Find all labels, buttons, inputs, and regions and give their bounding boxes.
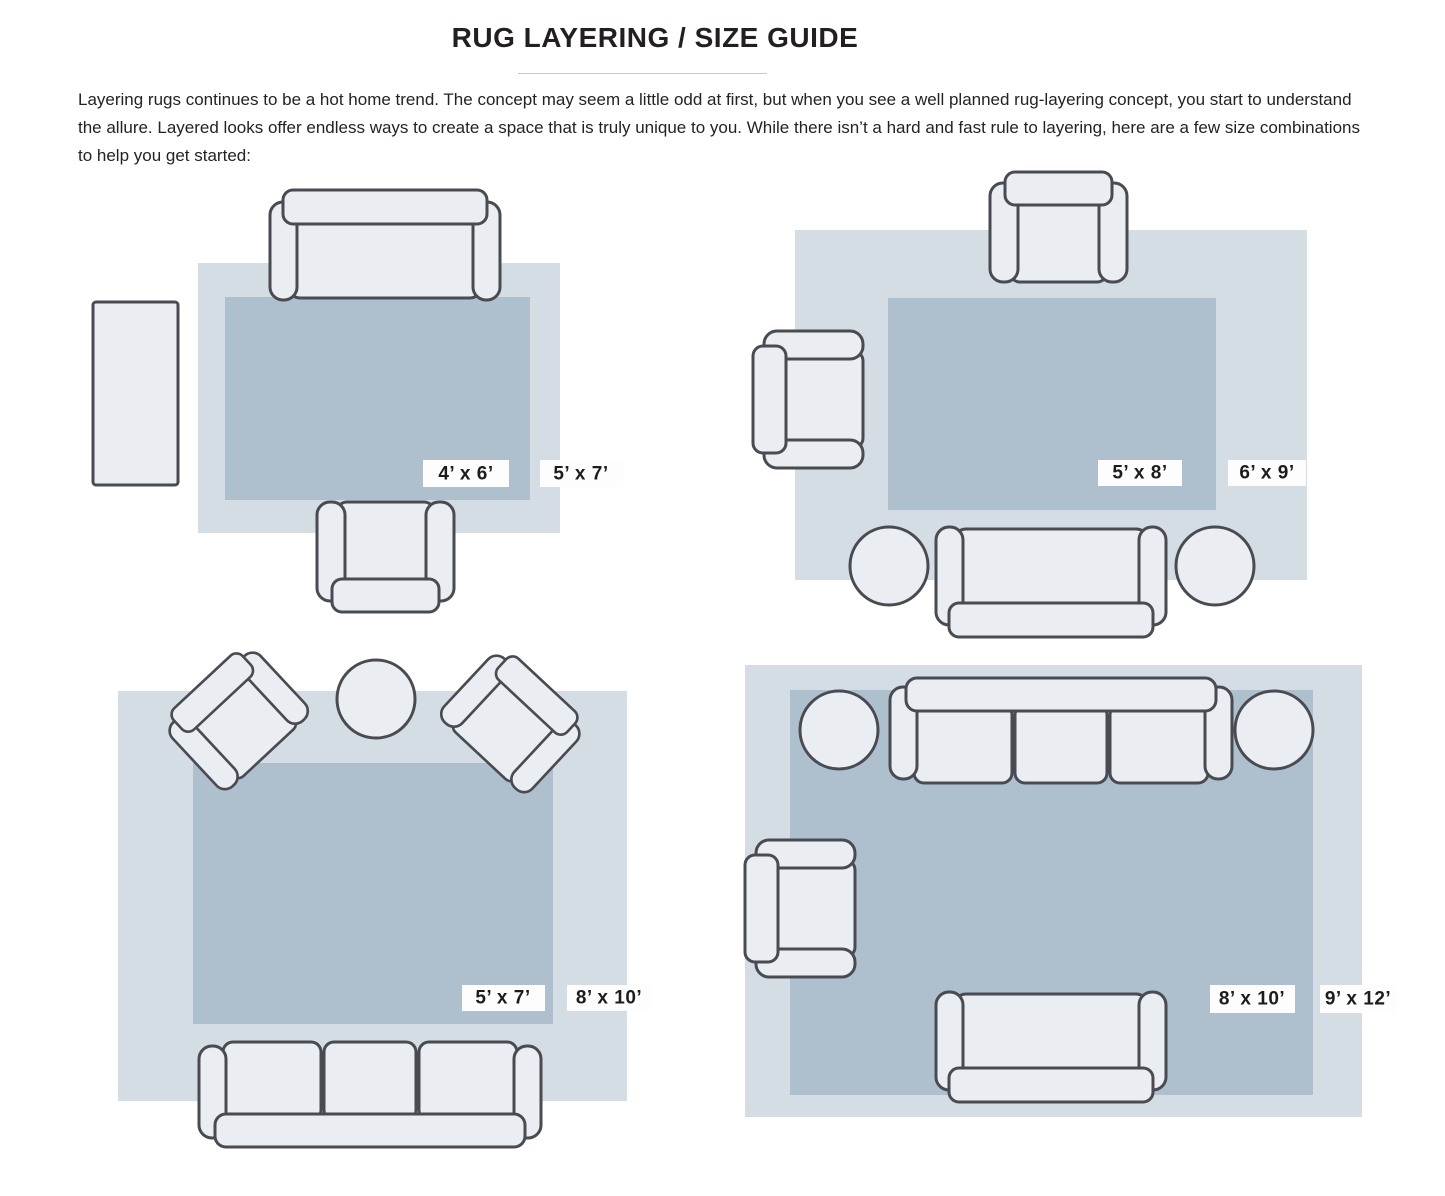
label-text: 9’ x 12’: [1325, 989, 1391, 1010]
label-text: 5’ x 8’: [1112, 463, 1167, 484]
diagram-bottom-right: 8’ x 10’ 9’ x 12’: [745, 665, 1397, 1117]
diagrams-canvas: 4’ x 6’ 5’ x 7’ 5’ x 8’ 6’ x 9’: [0, 0, 1445, 1196]
diagram-bottom-left: 5’ x 7’ 8’ x 10’: [118, 641, 651, 1147]
round-table-icon: [1176, 527, 1254, 605]
sofa-icon: [199, 1042, 541, 1147]
label-text: 4’ x 6’: [438, 464, 493, 485]
armchair-icon: [745, 840, 855, 977]
diagram-top-right: 5’ x 8’ 6’ x 9’: [753, 172, 1307, 637]
round-table-icon: [850, 527, 928, 605]
armchair-icon: [317, 502, 454, 612]
sofa-icon: [890, 678, 1232, 783]
rug-size-guide-page: RUG LAYERING / SIZE GUIDE Layering rugs …: [0, 0, 1445, 1196]
console-table-icon: [93, 302, 178, 485]
round-table-icon: [337, 660, 415, 738]
outer-size-label: 5’ x 7’: [540, 460, 623, 487]
label-text: 8’ x 10’: [576, 988, 642, 1009]
inner-size-label: 5’ x 8’: [1098, 460, 1182, 486]
loveseat-icon: [936, 992, 1166, 1102]
sofa-icon: [936, 527, 1166, 637]
armchair-icon: [990, 172, 1127, 282]
inner-size-label: 5’ x 7’: [462, 985, 545, 1011]
outer-size-label: 9’ x 12’: [1320, 985, 1397, 1013]
label-text: 6’ x 9’: [1239, 463, 1294, 484]
diagram-top-left: 4’ x 6’ 5’ x 7’: [93, 190, 623, 612]
inner-size-label: 8’ x 10’: [1210, 985, 1295, 1013]
round-table-icon: [800, 691, 878, 769]
label-text: 5’ x 7’: [475, 988, 530, 1009]
round-table-icon: [1235, 691, 1313, 769]
label-text: 8’ x 10’: [1219, 989, 1285, 1010]
outer-size-label: 6’ x 9’: [1228, 460, 1306, 486]
armchair-icon: [753, 331, 863, 468]
inner-size-label: 4’ x 6’: [423, 460, 509, 487]
outer-size-label: 8’ x 10’: [567, 985, 651, 1011]
label-text: 5’ x 7’: [553, 464, 608, 485]
sofa-icon: [270, 190, 500, 300]
inner-rug: [193, 763, 553, 1024]
